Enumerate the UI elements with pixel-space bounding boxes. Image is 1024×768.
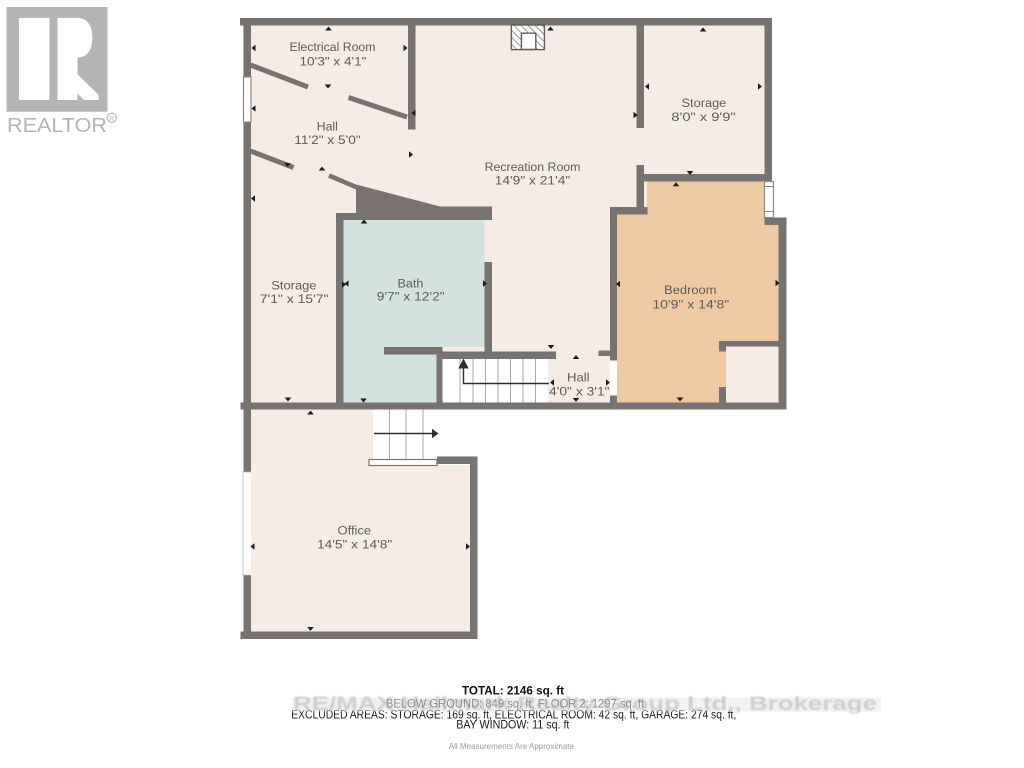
svg-text:14'9" x 21'4": 14'9" x 21'4" bbox=[495, 173, 571, 187]
svg-text:8'0" x 9'9": 8'0" x 9'9" bbox=[671, 110, 735, 124]
svg-text:4'0" x 3'1": 4'0" x 3'1" bbox=[549, 384, 610, 398]
svg-text:Storage: Storage bbox=[682, 96, 727, 110]
svg-text:7'1" x 15'7": 7'1" x 15'7" bbox=[260, 292, 329, 306]
svg-text:10'3" x 4'1": 10'3" x 4'1" bbox=[300, 55, 367, 69]
svg-text:Hall: Hall bbox=[567, 371, 590, 385]
svg-text:14'5" x 14'8": 14'5" x 14'8" bbox=[317, 537, 392, 551]
svg-text:RE/MAX Hallmark Realty Group L: RE/MAX Hallmark Realty Group Ltd., Broke… bbox=[293, 693, 877, 715]
svg-text:All Measurements Are Approxima: All Measurements Are Approximate bbox=[449, 741, 575, 751]
svg-text:10'9" x 14'8": 10'9" x 14'8" bbox=[652, 297, 729, 311]
svg-text:11'2" x 5'0": 11'2" x 5'0" bbox=[294, 133, 360, 147]
svg-text:R: R bbox=[109, 116, 114, 123]
svg-text:Electrical Room: Electrical Room bbox=[290, 40, 376, 54]
svg-text:Recreation Room: Recreation Room bbox=[485, 160, 581, 174]
svg-text:9'7" x 12'2": 9'7" x 12'2" bbox=[377, 289, 445, 303]
svg-text:Bedroom: Bedroom bbox=[664, 283, 716, 297]
svg-text:BAY WINDOW: 11 sq. ft: BAY WINDOW: 11 sq. ft bbox=[456, 719, 570, 732]
svg-text:REALTOR: REALTOR bbox=[7, 115, 107, 137]
svg-text:Storage: Storage bbox=[271, 278, 316, 292]
svg-text:Office: Office bbox=[338, 524, 372, 538]
svg-text:Bath: Bath bbox=[398, 276, 424, 290]
svg-text:Hall: Hall bbox=[317, 119, 338, 133]
